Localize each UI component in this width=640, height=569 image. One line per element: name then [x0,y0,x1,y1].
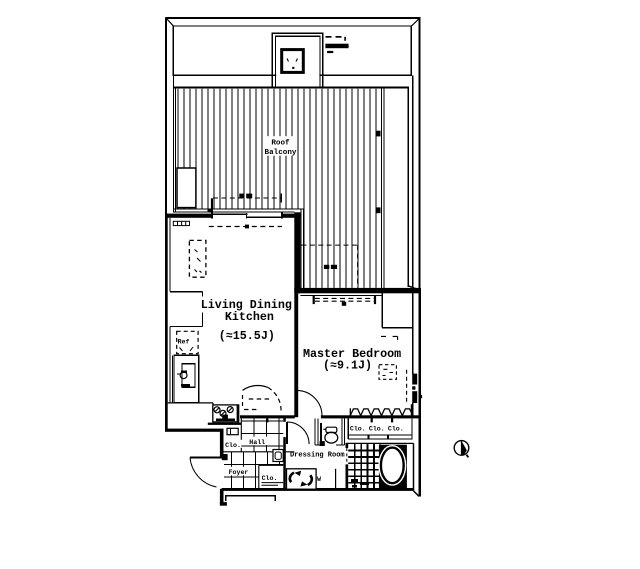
svg-text:Kitchen: Kitchen [225,310,274,324]
svg-text:Clo.: Clo. [262,475,278,482]
svg-text:Clo.: Clo. [369,425,385,432]
svg-text:(≈9.1J): (≈9.1J) [323,358,372,372]
svg-text:Foyer: Foyer [229,469,249,476]
svg-text:Roof: Roof [271,140,290,148]
svg-text:Clo.: Clo. [225,442,241,449]
svg-text:Ref: Ref [178,339,190,346]
svg-text:Clo.: Clo. [388,425,404,432]
svg-text:Balcony: Balcony [265,149,297,157]
svg-text:(≈15.5J): (≈15.5J) [219,329,275,343]
svg-text:Dressing Room: Dressing Room [290,451,345,459]
svg-text:W: W [317,476,321,483]
svg-text:Clo.: Clo. [350,425,366,432]
svg-text:Hall: Hall [249,439,265,446]
